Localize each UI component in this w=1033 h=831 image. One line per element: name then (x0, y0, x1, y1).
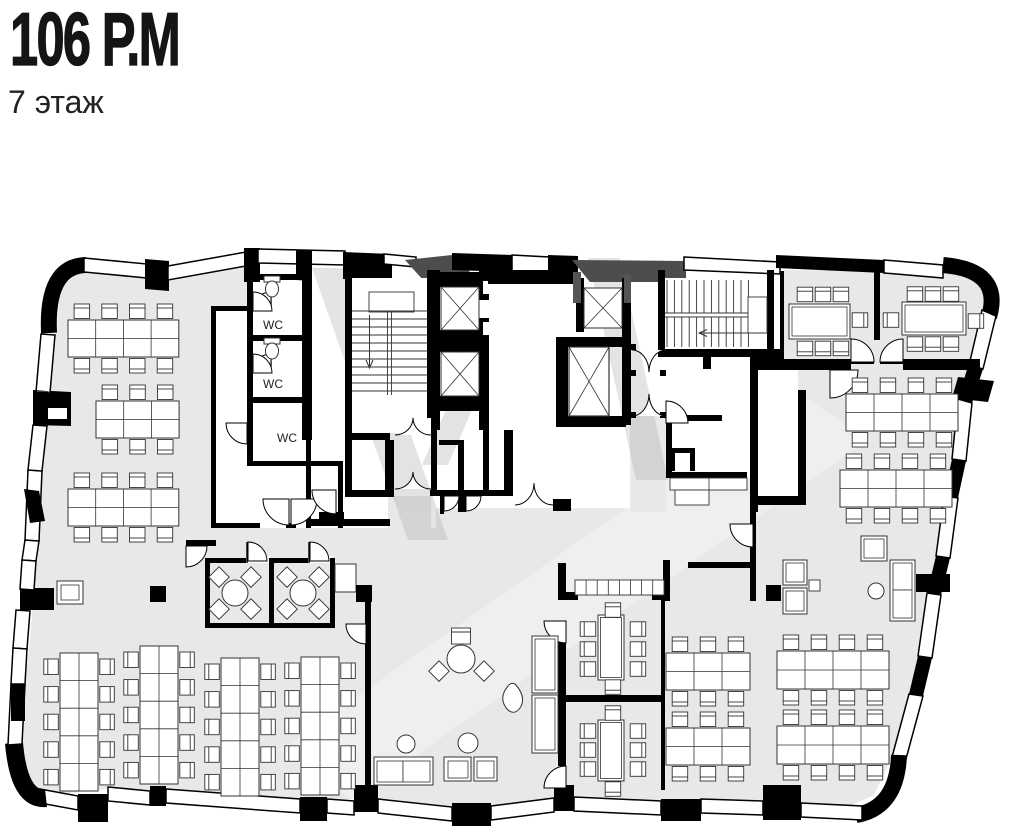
svg-text:WC: WC (277, 431, 297, 445)
svg-text:WC: WC (263, 318, 283, 332)
svg-text:WC: WC (263, 377, 283, 391)
